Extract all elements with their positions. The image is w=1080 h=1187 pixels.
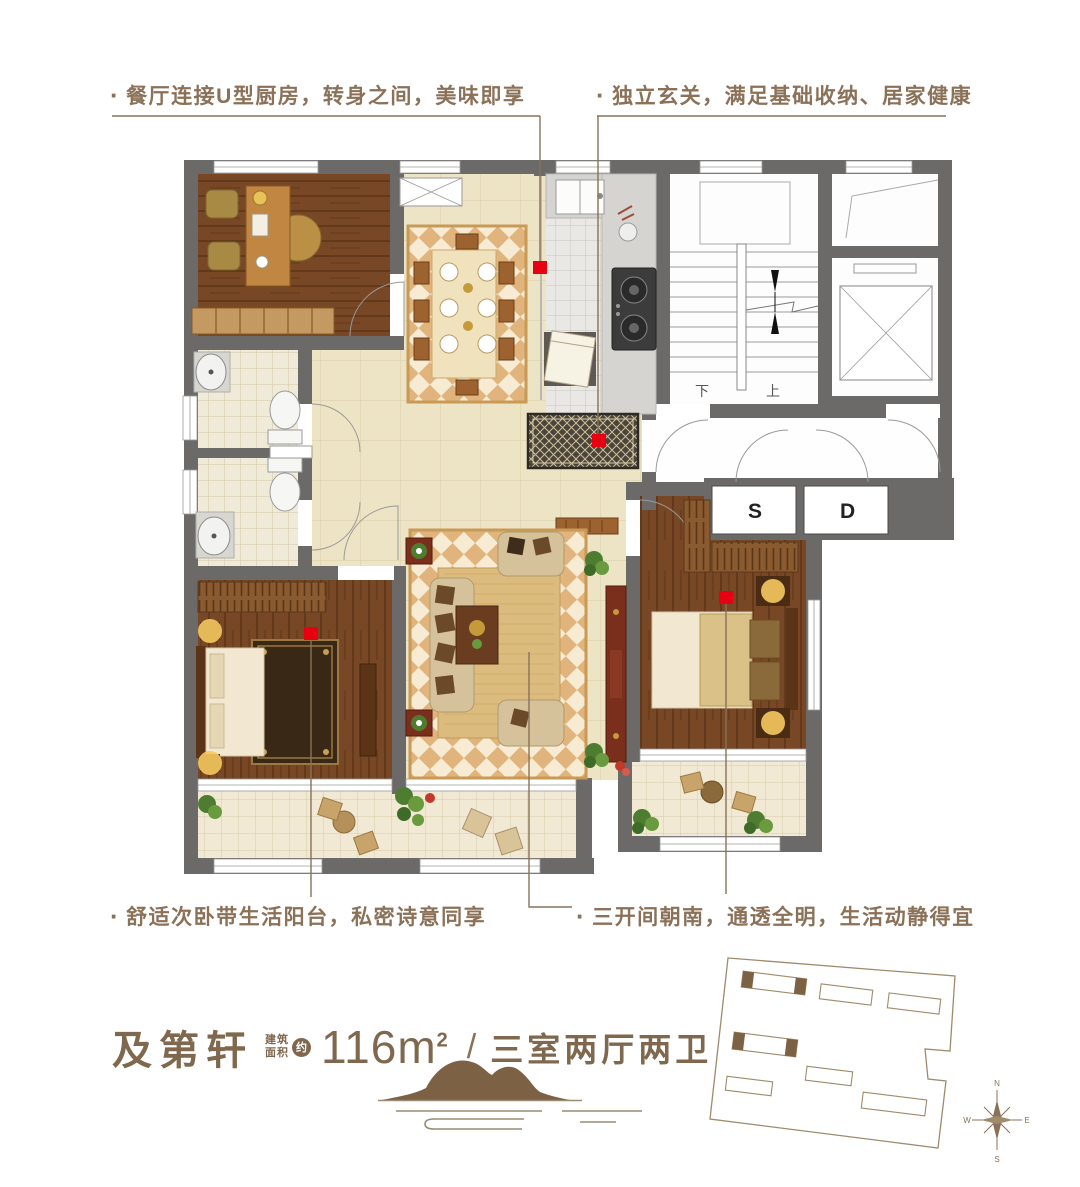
- annotation-text: 舒适次卧带生活阳台，私密诗意同享: [126, 901, 486, 931]
- bullet-dot: ·: [110, 906, 120, 927]
- lamp-glow: [761, 579, 785, 603]
- wall-kitchen-stair: [656, 160, 670, 418]
- building-highlighted: [732, 1032, 798, 1057]
- desk-cup: [256, 256, 268, 268]
- corridor-floor: [656, 418, 950, 480]
- entry-mat: [528, 414, 638, 468]
- pillow: [210, 704, 224, 748]
- toilet-tank: [268, 458, 302, 472]
- building: [725, 1076, 772, 1096]
- bed-headboard: [786, 608, 798, 710]
- pillow: [750, 620, 780, 658]
- wall-bedroom2-east: [392, 566, 406, 794]
- compass-n: N: [994, 1079, 1000, 1088]
- compass-icon: N S W E: [962, 1076, 1032, 1164]
- bullet-dot: ·: [596, 85, 606, 106]
- laptop: [252, 214, 268, 236]
- sofa-single: [498, 700, 564, 746]
- project-name: 及第轩: [112, 1018, 253, 1076]
- annotation-text: 独立玄关，满足基础收纳、居家健康: [612, 80, 972, 110]
- bullet-dot: ·: [576, 906, 586, 927]
- sofa-single: [498, 532, 564, 576]
- mountain-icon: [382, 1060, 570, 1100]
- annotation-text: 三开间朝南，通透全明，生活动静得宜: [592, 901, 975, 931]
- lamp-glow: [198, 751, 222, 775]
- site-plan: [698, 946, 968, 1161]
- window-kitchen-top: [556, 161, 610, 173]
- elevator-door: [854, 264, 916, 273]
- wall-balcony-right: [576, 778, 592, 874]
- dresser: [360, 664, 376, 756]
- lamp-glow: [761, 711, 785, 735]
- wall-stair-elevator: [818, 160, 832, 410]
- window-bedroom2-sill: [198, 779, 392, 791]
- window-living-sill: [406, 779, 576, 791]
- mountain-art: [372, 1048, 662, 1148]
- window-bath-b: [183, 470, 197, 514]
- bath-shelf: [270, 446, 312, 458]
- stair-up-label: 上: [766, 383, 780, 399]
- site-buildings: [725, 971, 940, 1116]
- floorplan-page: { "annotations": { "bullet": "·", "top_l…: [0, 0, 1080, 1187]
- cloud-lines: [378, 1101, 642, 1130]
- bullet-dot: ·: [110, 85, 120, 106]
- window-masterbed-sill: [640, 749, 806, 761]
- marker-dining-kitchen: [533, 261, 547, 274]
- window-master-east: [808, 600, 820, 710]
- window-balcony-right: [420, 859, 540, 873]
- toilet: [270, 473, 300, 511]
- area-label: 建筑 面积: [265, 1034, 289, 1060]
- bed-headboard: [196, 646, 206, 758]
- stair-down-label: 下: [695, 383, 709, 399]
- fridge: [544, 331, 595, 387]
- pillow: [210, 654, 224, 698]
- guest-chair: [208, 242, 240, 270]
- window-study-top: [214, 161, 318, 173]
- toilet: [270, 391, 300, 429]
- compass-w: W: [963, 1116, 971, 1125]
- toilet-tank: [268, 430, 302, 444]
- wardrobe: [712, 542, 798, 572]
- building: [819, 984, 872, 1005]
- window-utility-top: [846, 161, 912, 173]
- annotation-text: 餐厅连接U型厨房，转身之间，美味即享: [126, 80, 525, 110]
- building: [887, 993, 940, 1014]
- pillow: [750, 662, 780, 700]
- building: [861, 1092, 926, 1116]
- wardrobe: [198, 582, 326, 612]
- wardrobe: [684, 500, 710, 572]
- window-dining-top: [400, 161, 460, 173]
- window-stair-top: [700, 161, 762, 173]
- window-bath-a: [183, 396, 197, 440]
- lamp-glow: [198, 619, 222, 643]
- annotation-top-right: · 独立玄关，满足基础收纳、居家健康: [596, 80, 972, 110]
- marker-foyer: [592, 434, 606, 447]
- compass-e: E: [1024, 1116, 1029, 1125]
- annotation-bottom-right: · 三开间朝南，通透全明，生活动静得宜: [576, 901, 975, 931]
- wall-utility-south: [820, 246, 952, 258]
- compass-s: S: [994, 1155, 999, 1164]
- window-balcony-left: [214, 859, 322, 873]
- marker-master-bedroom: [719, 591, 733, 604]
- building: [805, 1066, 852, 1086]
- approx-badge: 约: [292, 1038, 311, 1057]
- desk-lamp: [253, 191, 267, 205]
- shaft-d-label: D: [840, 500, 855, 523]
- wall-study-south: [184, 336, 404, 350]
- guest-chair: [206, 190, 238, 218]
- stair-rail: [737, 244, 746, 390]
- annotation-top-left: · 餐厅连接U型厨房，转身之间，美味即享: [110, 80, 525, 110]
- shaft-s-label: S: [748, 500, 762, 523]
- wall-right: [938, 160, 952, 418]
- ornate-rug: [252, 640, 338, 764]
- marker-second-bedroom: [304, 627, 318, 640]
- bookshelf: [192, 308, 334, 334]
- window-master-balcony: [660, 837, 780, 851]
- balcony-table: [701, 781, 723, 803]
- building-highlighted: [741, 971, 806, 995]
- annotation-bottom-left: · 舒适次卧带生活阳台，私密诗意同享: [110, 901, 486, 931]
- wall-master-corner: [626, 482, 656, 496]
- kitchen-bowl: [619, 223, 637, 241]
